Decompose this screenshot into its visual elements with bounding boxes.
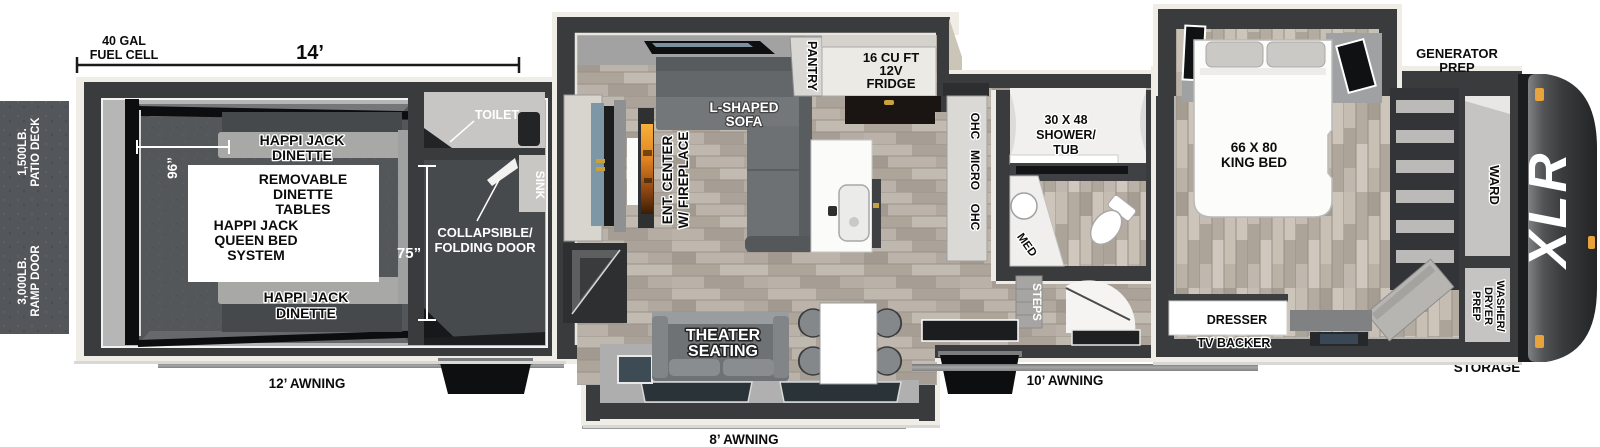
svg-text:FRIDGE: FRIDGE [866,76,915,91]
svg-text:REMOVABLE: REMOVABLE [259,171,347,187]
svg-text:30 X 48: 30 X 48 [1044,113,1087,127]
svg-text:QUEEN BED: QUEEN BED [214,232,297,248]
svg-text:FUEL CELL: FUEL CELL [90,48,159,62]
svg-text:TABLES: TABLES [276,201,331,217]
svg-text:8’ AWNING: 8’ AWNING [709,432,778,447]
svg-text:HAPPI JACK: HAPPI JACK [214,217,299,233]
svg-text:DRESSER: DRESSER [1207,313,1267,327]
svg-text:THEATER: THEATER [686,327,761,344]
svg-text:DINETTE: DINETTE [273,186,333,202]
svg-text:MICRO: MICRO [968,150,982,190]
svg-text:66 X 80: 66 X 80 [1231,140,1278,155]
svg-text:TOILET: TOILET [475,108,520,122]
svg-text:TV BACKER: TV BACKER [1198,336,1271,350]
svg-text:SHOWER/: SHOWER/ [1036,128,1096,142]
svg-text:PANTRY: PANTRY [805,41,819,92]
svg-text:STEPS: STEPS [1030,283,1042,321]
svg-text:ENT. CENTER: ENT. CENTER [660,135,675,224]
svg-text:DINETTE: DINETTE [276,305,336,321]
svg-text:W/ FIREPLACE: W/ FIREPLACE [676,132,691,229]
svg-text:FOLDING DOOR: FOLDING DOOR [434,240,536,255]
svg-text:40 GAL: 40 GAL [102,34,146,48]
svg-text:HAPPI JACK: HAPPI JACK [264,289,349,305]
svg-text:HAPPI JACK: HAPPI JACK [260,132,345,148]
svg-text:10’ AWNING: 10’ AWNING [1027,373,1104,388]
svg-text:SYSTEM: SYSTEM [227,247,285,263]
svg-text:WARD: WARD [1487,165,1502,205]
svg-text:KING BED: KING BED [1221,155,1287,170]
svg-text:14’: 14’ [296,42,324,64]
svg-text:SOFA: SOFA [726,114,763,129]
svg-text:DINETTE: DINETTE [272,147,332,163]
svg-text:PREP: PREP [1439,60,1475,75]
svg-text:12’ AWNING: 12’ AWNING [269,376,346,391]
svg-text:OHC: OHC [968,204,982,231]
svg-text:75”: 75” [397,245,421,262]
svg-text:XLR: XLR [1518,151,1578,271]
svg-text:TUB: TUB [1053,143,1079,157]
svg-text:COLLAPSIBLE/: COLLAPSIBLE/ [437,225,533,240]
svg-text:GENERATOR: GENERATOR [1416,46,1498,61]
svg-text:OHC: OHC [968,113,982,140]
svg-text:SINK: SINK [533,171,547,200]
svg-text:L-SHAPED: L-SHAPED [709,100,778,115]
svg-text:96”: 96” [165,157,180,179]
svg-text:SEATING: SEATING [688,343,758,360]
